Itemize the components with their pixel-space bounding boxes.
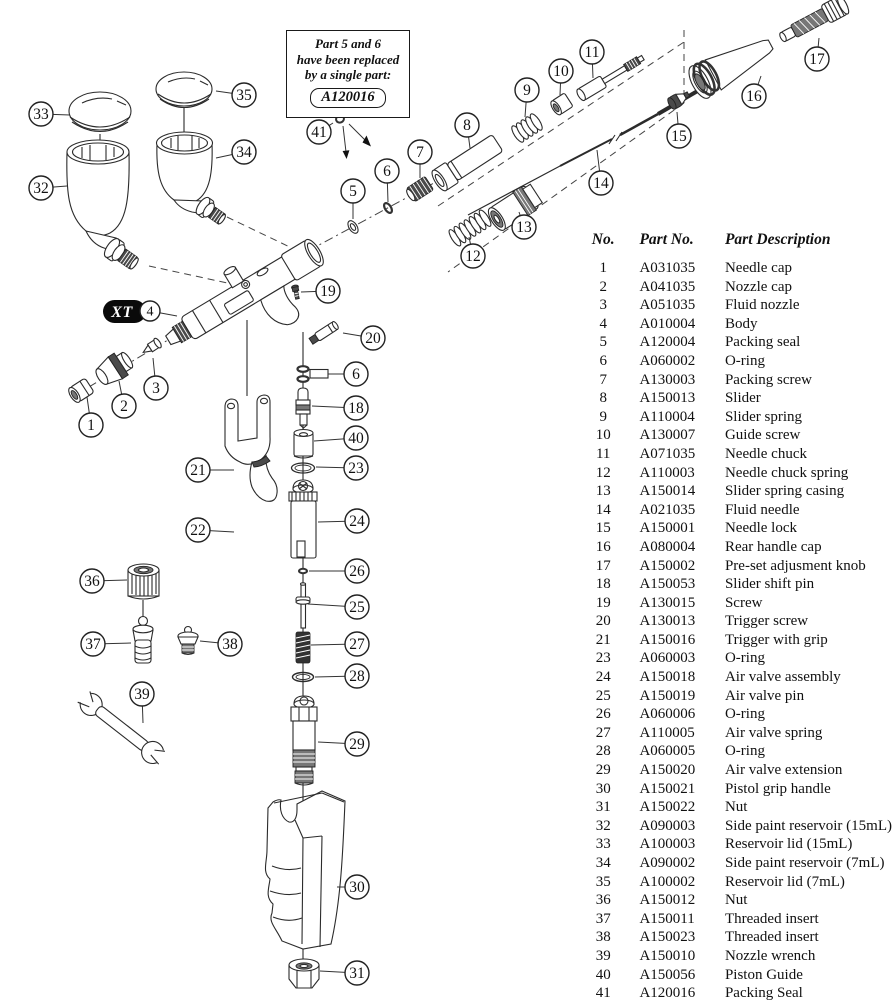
svg-text:27: 27 — [349, 636, 365, 653]
parts-table-row: 36A150012Nut — [584, 891, 892, 910]
parts-table: No. Part No. Part Description 1A031035Ne… — [584, 231, 892, 1000]
callout-15: 15 — [667, 112, 691, 148]
svg-text:18: 18 — [348, 400, 364, 417]
cell-part_no: A110005 — [622, 724, 708, 743]
trigger-screw-drawing — [309, 321, 340, 345]
callout-26: 26 — [309, 559, 369, 583]
o-ring-pair-drawing — [298, 366, 329, 382]
cell-no: 39 — [584, 947, 622, 966]
parts-table-row: 3A051035Fluid nozzle — [584, 296, 892, 315]
cell-part_no: A120004 — [622, 333, 708, 352]
cell-description: Pistol grip handle — [708, 780, 892, 799]
parts-table-row: 26A060006O-ring — [584, 705, 892, 724]
callout-9: 9 — [515, 78, 539, 117]
cell-part_no: A060005 — [622, 742, 708, 761]
parts-table-row: 29A150020Air valve extension — [584, 761, 892, 780]
cell-description: Piston Guide — [708, 966, 892, 985]
callout-41: 41 — [307, 120, 333, 144]
cell-no: 24 — [584, 668, 622, 687]
cell-part_no: A150002 — [622, 557, 708, 576]
cell-part_no: A060006 — [622, 705, 708, 724]
svg-text:12: 12 — [465, 248, 481, 265]
cell-part_no: A010004 — [622, 315, 708, 334]
cell-description: Air valve assembly — [708, 668, 892, 687]
parts-table-row: 30A150021Pistol grip handle — [584, 780, 892, 799]
cell-part_no: A150020 — [622, 761, 708, 780]
svg-text:14: 14 — [593, 175, 609, 192]
svg-text:26: 26 — [349, 563, 365, 580]
cell-no: 23 — [584, 649, 622, 668]
parts-table-row: 10A130007Guide screw — [584, 426, 892, 445]
cell-no: 34 — [584, 854, 622, 873]
cell-part_no: A150016 — [622, 631, 708, 650]
nozzle-cap-drawing — [92, 348, 137, 390]
callout-20: 20 — [343, 326, 385, 350]
callout-22: 22 — [186, 518, 234, 542]
cell-no: 36 — [584, 891, 622, 910]
cell-part_no: A150023 — [622, 928, 708, 947]
cell-no: 6 — [584, 352, 622, 371]
cell-no: 35 — [584, 873, 622, 892]
svg-text:4: 4 — [147, 305, 154, 320]
parts-table-row: 11A071035Needle chuck — [584, 445, 892, 464]
cell-no: 11 — [584, 445, 622, 464]
cell-no: 40 — [584, 966, 622, 985]
cell-description: Reservoir lid (7mL) — [708, 873, 892, 892]
reservoir-lid-15ml-drawing — [69, 92, 131, 132]
cell-no: 26 — [584, 705, 622, 724]
parts-table-row: 7A130003Packing screw — [584, 371, 892, 390]
svg-text:37: 37 — [85, 636, 101, 653]
cell-no: 27 — [584, 724, 622, 743]
side-paint-reservoir-7ml-drawing — [157, 132, 230, 229]
cell-no: 2 — [584, 278, 622, 297]
parts-table-row: 6A060002O-ring — [584, 352, 892, 371]
cell-no: 8 — [584, 389, 622, 408]
needle-cap-drawing — [66, 378, 94, 404]
cell-no: 41 — [584, 984, 622, 1000]
cell-description: O-ring — [708, 705, 892, 724]
callout-11: 11 — [580, 40, 604, 78]
callout-6: 6 — [375, 159, 399, 202]
cell-no: 21 — [584, 631, 622, 650]
pistol-grip-handle-drawing — [265, 791, 345, 949]
callout-39: 39 — [130, 682, 154, 723]
cell-part_no: A150018 — [622, 668, 708, 687]
cell-description: O-ring — [708, 742, 892, 761]
svg-text:29: 29 — [349, 736, 365, 753]
replacement-note: Part 5 and 6 have been replaced by a sin… — [286, 30, 410, 118]
svg-text:36: 36 — [84, 573, 100, 590]
cell-part_no: A080004 — [622, 538, 708, 557]
nozzle-wrench-drawing — [71, 685, 173, 771]
cell-no: 4 — [584, 315, 622, 334]
callout-30: 30 — [337, 875, 369, 899]
cell-part_no: A021035 — [622, 501, 708, 520]
cell-description: Screw — [708, 594, 892, 613]
cell-description: Nut — [708, 891, 892, 910]
callout-16: 16 — [742, 76, 766, 108]
callout-40: 40 — [314, 426, 368, 450]
cell-part_no: A110004 — [622, 408, 708, 427]
air-valve-pin-drawing — [296, 583, 310, 628]
note-line: Part 5 and 6 — [289, 36, 407, 52]
cell-description: Trigger screw — [708, 612, 892, 631]
cell-no: 3 — [584, 296, 622, 315]
svg-text:XT: XT — [110, 304, 133, 321]
cell-no: 37 — [584, 910, 622, 929]
parts-table-row: 25A150019Air valve pin — [584, 687, 892, 706]
replacement-part-number: A120016 — [310, 88, 385, 108]
svg-text:6: 6 — [352, 366, 360, 383]
cell-description: Air valve spring — [708, 724, 892, 743]
cell-no: 18 — [584, 575, 622, 594]
parts-table-body: 1A031035Needle cap2A041035Nozzle cap3A05… — [584, 259, 892, 1000]
cell-part_no: A031035 — [622, 259, 708, 278]
nut-31-drawing — [289, 959, 319, 988]
callout-7: 7 — [408, 140, 432, 178]
svg-text:19: 19 — [320, 283, 336, 300]
cell-description: Needle chuck spring — [708, 464, 892, 483]
cell-part_no: A100002 — [622, 873, 708, 892]
header-part-no: Part No. — [622, 231, 708, 259]
cell-description: Needle cap — [708, 259, 892, 278]
svg-text:15: 15 — [671, 128, 687, 145]
cell-description: Rear handle cap — [708, 538, 892, 557]
cell-description: Nut — [708, 798, 892, 817]
callout-28: 28 — [315, 664, 369, 688]
cell-no: 17 — [584, 557, 622, 576]
svg-text:31: 31 — [349, 965, 365, 982]
parts-table-row: 18A150053Slider shift pin — [584, 575, 892, 594]
airbrush-body-drawing — [152, 223, 344, 382]
air-valve-assembly-drawing — [289, 480, 317, 558]
svg-text:32: 32 — [33, 180, 49, 197]
cell-description: Needle lock — [708, 519, 892, 538]
cell-no: 32 — [584, 817, 622, 836]
cell-part_no: A130013 — [622, 612, 708, 631]
svg-text:28: 28 — [349, 668, 365, 685]
o-ring-26-drawing — [299, 569, 307, 573]
cell-no: 14 — [584, 501, 622, 520]
cell-part_no: A150014 — [622, 482, 708, 501]
air-valve-extension-drawing — [291, 696, 317, 785]
cell-description: Slider spring casing — [708, 482, 892, 501]
svg-text:13: 13 — [516, 219, 532, 236]
callout-32: 32 — [29, 176, 67, 200]
callout-6: 6 — [328, 362, 368, 386]
cell-part_no: A051035 — [622, 296, 708, 315]
callout-19: 19 — [301, 279, 340, 303]
callout-31: 31 — [320, 961, 369, 985]
cell-part_no: A150012 — [622, 891, 708, 910]
parts-table-row: 20A130013Trigger screw — [584, 612, 892, 631]
svg-text:21: 21 — [190, 462, 206, 479]
cell-part_no: A060002 — [622, 352, 708, 371]
callout-35: 35 — [216, 83, 256, 107]
air-valve-spring-drawing — [296, 632, 310, 663]
cell-part_no: A130003 — [622, 371, 708, 390]
callout-4: 4 — [140, 301, 177, 321]
callout-17: 17 — [805, 38, 829, 71]
cell-description: Trigger with grip — [708, 631, 892, 650]
cell-no: 38 — [584, 928, 622, 947]
airbrush-parts-diagram-page: XT 3335323441567891011121314151617419206… — [0, 0, 896, 1000]
cell-description: Packing seal — [708, 333, 892, 352]
cell-part_no: A060003 — [622, 649, 708, 668]
parts-table-row: 37A150011Threaded insert — [584, 910, 892, 929]
slider-shift-pin-drawing — [296, 388, 310, 428]
cell-part_no: A150021 — [622, 780, 708, 799]
svg-text:7: 7 — [416, 144, 424, 161]
cell-description: Side paint reservoir (15mL) — [708, 817, 892, 836]
cell-no: 30 — [584, 780, 622, 799]
parts-table-row: 4A010004Body — [584, 315, 892, 334]
svg-text:41: 41 — [311, 124, 327, 141]
parts-table-row: 17A150002Pre-set adjusment knob — [584, 557, 892, 576]
parts-table-row: 16A080004Rear handle cap — [584, 538, 892, 557]
header-part-description: Part Description — [708, 231, 892, 259]
threaded-insert-37-drawing — [133, 617, 153, 664]
parts-table-row: 5A120004Packing seal — [584, 333, 892, 352]
reservoir-lid-7ml-drawing — [156, 72, 212, 108]
callout-23: 23 — [316, 456, 368, 480]
cell-no: 31 — [584, 798, 622, 817]
svg-text:23: 23 — [348, 460, 364, 477]
note-line: have been replaced — [289, 52, 407, 68]
cell-description: Packing screw — [708, 371, 892, 390]
callout-29: 29 — [318, 732, 369, 756]
header-no: No. — [584, 231, 622, 259]
parts-table-row: 40A150056Piston Guide — [584, 966, 892, 985]
callout-5: 5 — [341, 179, 365, 219]
parts-table-row: 24A150018Air valve assembly — [584, 668, 892, 687]
cell-part_no: A150056 — [622, 966, 708, 985]
cell-description: Needle chuck — [708, 445, 892, 464]
parts-table-row: 23A060003O-ring — [584, 649, 892, 668]
svg-text:2: 2 — [120, 398, 128, 415]
parts-table-row: 38A150023Threaded insert — [584, 928, 892, 947]
cell-part_no: A090002 — [622, 854, 708, 873]
parts-table-header-row: No. Part No. Part Description — [584, 231, 892, 259]
cell-no: 1 — [584, 259, 622, 278]
cell-description: Guide screw — [708, 426, 892, 445]
callout-3: 3 — [144, 358, 168, 400]
svg-text:16: 16 — [746, 88, 762, 105]
callout-18: 18 — [312, 396, 368, 420]
cell-no: 29 — [584, 761, 622, 780]
svg-text:1: 1 — [87, 417, 95, 434]
callout-34: 34 — [216, 140, 256, 164]
svg-text:25: 25 — [349, 599, 365, 616]
parts-table-row: 1A031035Needle cap — [584, 259, 892, 278]
svg-text:10: 10 — [553, 63, 569, 80]
cell-part_no: A150011 — [622, 910, 708, 929]
note-line: by a single part: — [289, 67, 407, 83]
svg-text:35: 35 — [236, 87, 252, 104]
cell-part_no: A100003 — [622, 835, 708, 854]
parts-table-row: 33A100003Reservoir lid (15mL) — [584, 835, 892, 854]
parts-table-row: 39A150010Nozzle wrench — [584, 947, 892, 966]
cell-no: 7 — [584, 371, 622, 390]
svg-text:40: 40 — [348, 430, 364, 447]
parts-table-row: 13A150014Slider spring casing — [584, 482, 892, 501]
callout-14: 14 — [589, 150, 613, 195]
parts-table-row: 9A110004Slider spring — [584, 408, 892, 427]
cell-no: 9 — [584, 408, 622, 427]
cell-description: Fluid needle — [708, 501, 892, 520]
svg-text:6: 6 — [383, 163, 391, 180]
cell-description: Slider spring — [708, 408, 892, 427]
cell-part_no: A041035 — [622, 278, 708, 297]
parts-table-row: 8A150013Slider — [584, 389, 892, 408]
cell-description: Air valve extension — [708, 761, 892, 780]
svg-text:9: 9 — [523, 82, 531, 99]
parts-table-row: 19A130015Screw — [584, 594, 892, 613]
cell-description: O-ring — [708, 649, 892, 668]
packing-seal-drawing — [346, 219, 360, 235]
cell-description: Nozzle cap — [708, 278, 892, 297]
trigger-with-grip-drawing — [225, 395, 277, 501]
callout-27: 27 — [311, 632, 369, 656]
cell-no: 33 — [584, 835, 622, 854]
callout-24: 24 — [318, 509, 369, 533]
callout-10: 10 — [549, 59, 573, 95]
cell-no: 13 — [584, 482, 622, 501]
screw-drawing — [291, 284, 301, 299]
cell-description: Fluid nozzle — [708, 296, 892, 315]
cell-part_no: A150022 — [622, 798, 708, 817]
callout-21: 21 — [186, 458, 234, 482]
cell-part_no: A150053 — [622, 575, 708, 594]
cell-part_no: A150010 — [622, 947, 708, 966]
piston-guide-drawing — [294, 430, 313, 459]
cell-description: Pre-set adjusment knob — [708, 557, 892, 576]
svg-text:39: 39 — [134, 686, 150, 703]
cell-description: Threaded insert — [708, 910, 892, 929]
parts-table-row: 2A041035Nozzle cap — [584, 278, 892, 297]
parts-table-row: 27A110005Air valve spring — [584, 724, 892, 743]
packing-screw-drawing — [404, 176, 433, 203]
cell-no: 12 — [584, 464, 622, 483]
parts-table-row: 15A150001Needle lock — [584, 519, 892, 538]
svg-text:34: 34 — [236, 144, 252, 161]
callout-2: 2 — [112, 381, 136, 418]
svg-text:38: 38 — [222, 636, 238, 653]
svg-text:17: 17 — [809, 51, 825, 68]
svg-text:24: 24 — [349, 513, 365, 530]
parts-table-row: 35A100002Reservoir lid (7mL) — [584, 873, 892, 892]
cell-part_no: A150019 — [622, 687, 708, 706]
callout-25: 25 — [308, 595, 369, 619]
parts-table-row: 32A090003Side paint reservoir (15mL) — [584, 817, 892, 836]
cell-part_no: A071035 — [622, 445, 708, 464]
parts-table-row: 31A150022Nut — [584, 798, 892, 817]
threaded-insert-38-drawing — [178, 627, 198, 655]
parts-table-row: 21A150016Trigger with grip — [584, 631, 892, 650]
cell-part_no: A120016 — [622, 984, 708, 1000]
fluid-needle-drawing — [468, 89, 701, 215]
slider-drawing — [429, 133, 504, 193]
callout-8: 8 — [455, 113, 479, 148]
parts-table-row: 28A060005O-ring — [584, 742, 892, 761]
svg-text:22: 22 — [190, 522, 206, 539]
cell-part_no: A090003 — [622, 817, 708, 836]
svg-text:3: 3 — [152, 380, 160, 397]
guide-screw-drawing — [549, 93, 573, 116]
cell-description: Air valve pin — [708, 687, 892, 706]
side-paint-reservoir-15ml-drawing — [67, 140, 142, 274]
cell-description: O-ring — [708, 352, 892, 371]
cell-no: 25 — [584, 687, 622, 706]
svg-text:5: 5 — [349, 183, 357, 200]
cell-description: Body — [708, 315, 892, 334]
parts-table-row: 12A110003Needle chuck spring — [584, 464, 892, 483]
cell-no: 20 — [584, 612, 622, 631]
svg-text:20: 20 — [365, 330, 381, 347]
callout-38: 38 — [200, 632, 242, 656]
parts-table-row: 41A120016Packing Seal — [584, 984, 892, 1000]
cell-no: 5 — [584, 333, 622, 352]
nut-36-drawing — [128, 564, 159, 617]
cell-description: Slider — [708, 389, 892, 408]
cell-part_no: A110003 — [622, 464, 708, 483]
svg-text:11: 11 — [585, 44, 600, 61]
callout-36: 36 — [80, 569, 127, 593]
cell-description: Nozzle wrench — [708, 947, 892, 966]
cell-part_no: A130007 — [622, 426, 708, 445]
cell-no: 28 — [584, 742, 622, 761]
cell-description: Slider shift pin — [708, 575, 892, 594]
cell-part_no: A130015 — [622, 594, 708, 613]
svg-text:33: 33 — [33, 106, 49, 123]
cell-part_no: A150013 — [622, 389, 708, 408]
packing-seal-41-drawing — [335, 114, 371, 159]
cell-description: Side paint reservoir (7mL) — [708, 854, 892, 873]
svg-text:30: 30 — [349, 879, 365, 896]
callout-33: 33 — [29, 102, 70, 126]
cell-part_no: A150001 — [622, 519, 708, 538]
svg-text:8: 8 — [463, 117, 471, 134]
callout-37: 37 — [81, 632, 131, 656]
callout-1: 1 — [79, 397, 103, 437]
parts-table-row: 14A021035Fluid needle — [584, 501, 892, 520]
cell-no: 19 — [584, 594, 622, 613]
cell-description: Packing Seal — [708, 984, 892, 1000]
cell-no: 10 — [584, 426, 622, 445]
preset-adjustment-knob-drawing — [776, 0, 851, 47]
cell-no: 15 — [584, 519, 622, 538]
parts-table-row: 34A090002Side paint reservoir (7mL) — [584, 854, 892, 873]
cell-description: Reservoir lid (15mL) — [708, 835, 892, 854]
cell-no: 16 — [584, 538, 622, 557]
cell-description: Threaded insert — [708, 928, 892, 947]
